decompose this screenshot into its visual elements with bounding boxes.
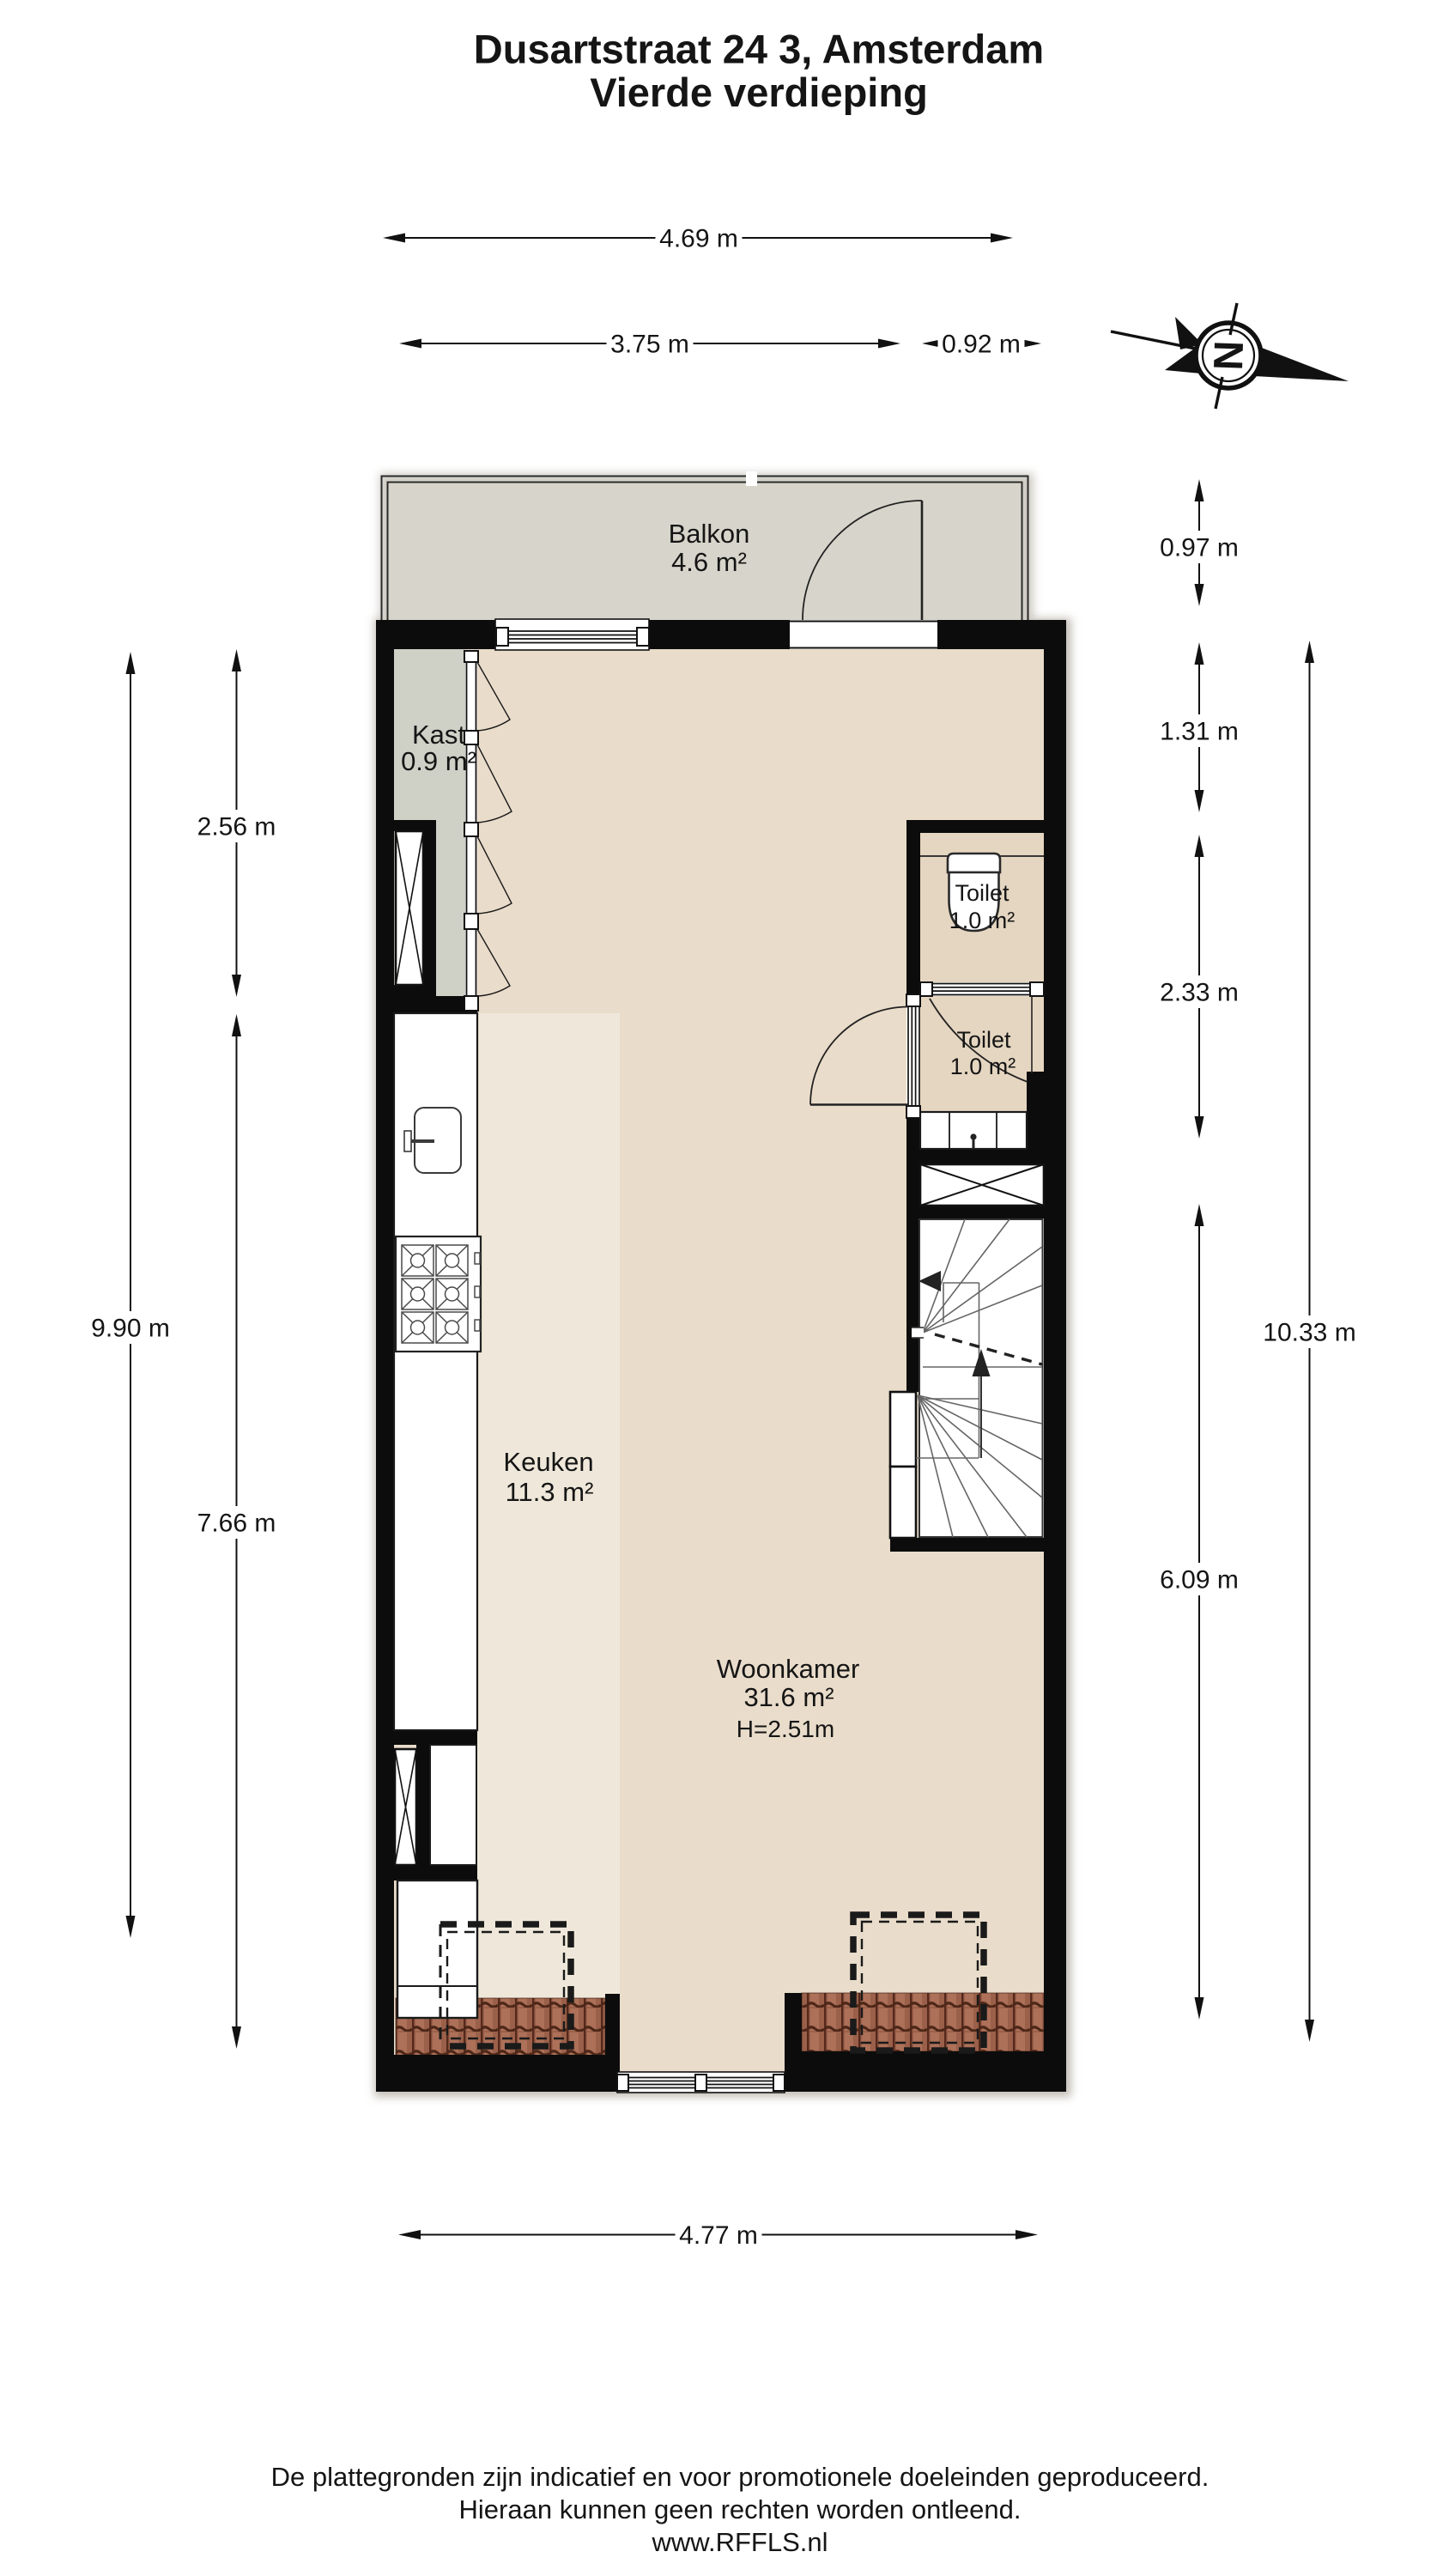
svg-text:9.90 m: 9.90 m [91,1315,170,1343]
svg-text:De plattegronden zijn indicati: De plattegronden zijn indicatief en voor… [271,2462,1210,2492]
svg-text:2.56 m: 2.56 m [197,813,276,841]
svg-text:11.3 m²: 11.3 m² [506,1477,594,1507]
svg-text:0.97 m: 0.97 m [1160,534,1239,562]
svg-text:Toilet: Toilet [955,880,1009,906]
svg-text:N: N [1204,340,1251,372]
svg-text:4.77 m: 4.77 m [679,2221,758,2250]
svg-text:Vierde verdieping: Vierde verdieping [590,70,928,115]
svg-text:6.09 m: 6.09 m [1160,1566,1239,1595]
svg-text:Kast: Kast [412,720,465,750]
svg-text:4.69 m: 4.69 m [659,225,738,253]
svg-text:10.33 m: 10.33 m [1263,1319,1355,1347]
svg-text:31.6 m²: 31.6 m² [743,1682,834,1712]
svg-text:Woonkamer: Woonkamer [717,1654,860,1684]
svg-text:1.0 m²: 1.0 m² [949,908,1016,933]
svg-text:0.9 m²: 0.9 m² [401,746,476,776]
svg-text:3.75 m: 3.75 m [610,331,689,359]
svg-text:2.33 m: 2.33 m [1160,979,1239,1007]
svg-text:4.6 m²: 4.6 m² [671,547,747,577]
svg-text:Toilet: Toilet [956,1027,1011,1053]
svg-text:Balkon: Balkon [669,519,750,549]
svg-text:www.RFFLS.nl: www.RFFLS.nl [652,2527,828,2557]
svg-text:7.66 m: 7.66 m [197,1510,276,1538]
svg-text:0.92 m: 0.92 m [942,331,1021,359]
svg-text:1.0 m²: 1.0 m² [950,1054,1016,1079]
svg-text:Keuken: Keuken [503,1447,593,1477]
svg-text:Dusartstraat 24 3, Amsterdam: Dusartstraat 24 3, Amsterdam [474,27,1044,72]
svg-text:1.31 m: 1.31 m [1160,718,1239,746]
svg-text:H=2.51m: H=2.51m [737,1716,834,1742]
svg-text:Hieraan kunnen geen rechten wo: Hieraan kunnen geen rechten worden ontle… [459,2494,1022,2524]
